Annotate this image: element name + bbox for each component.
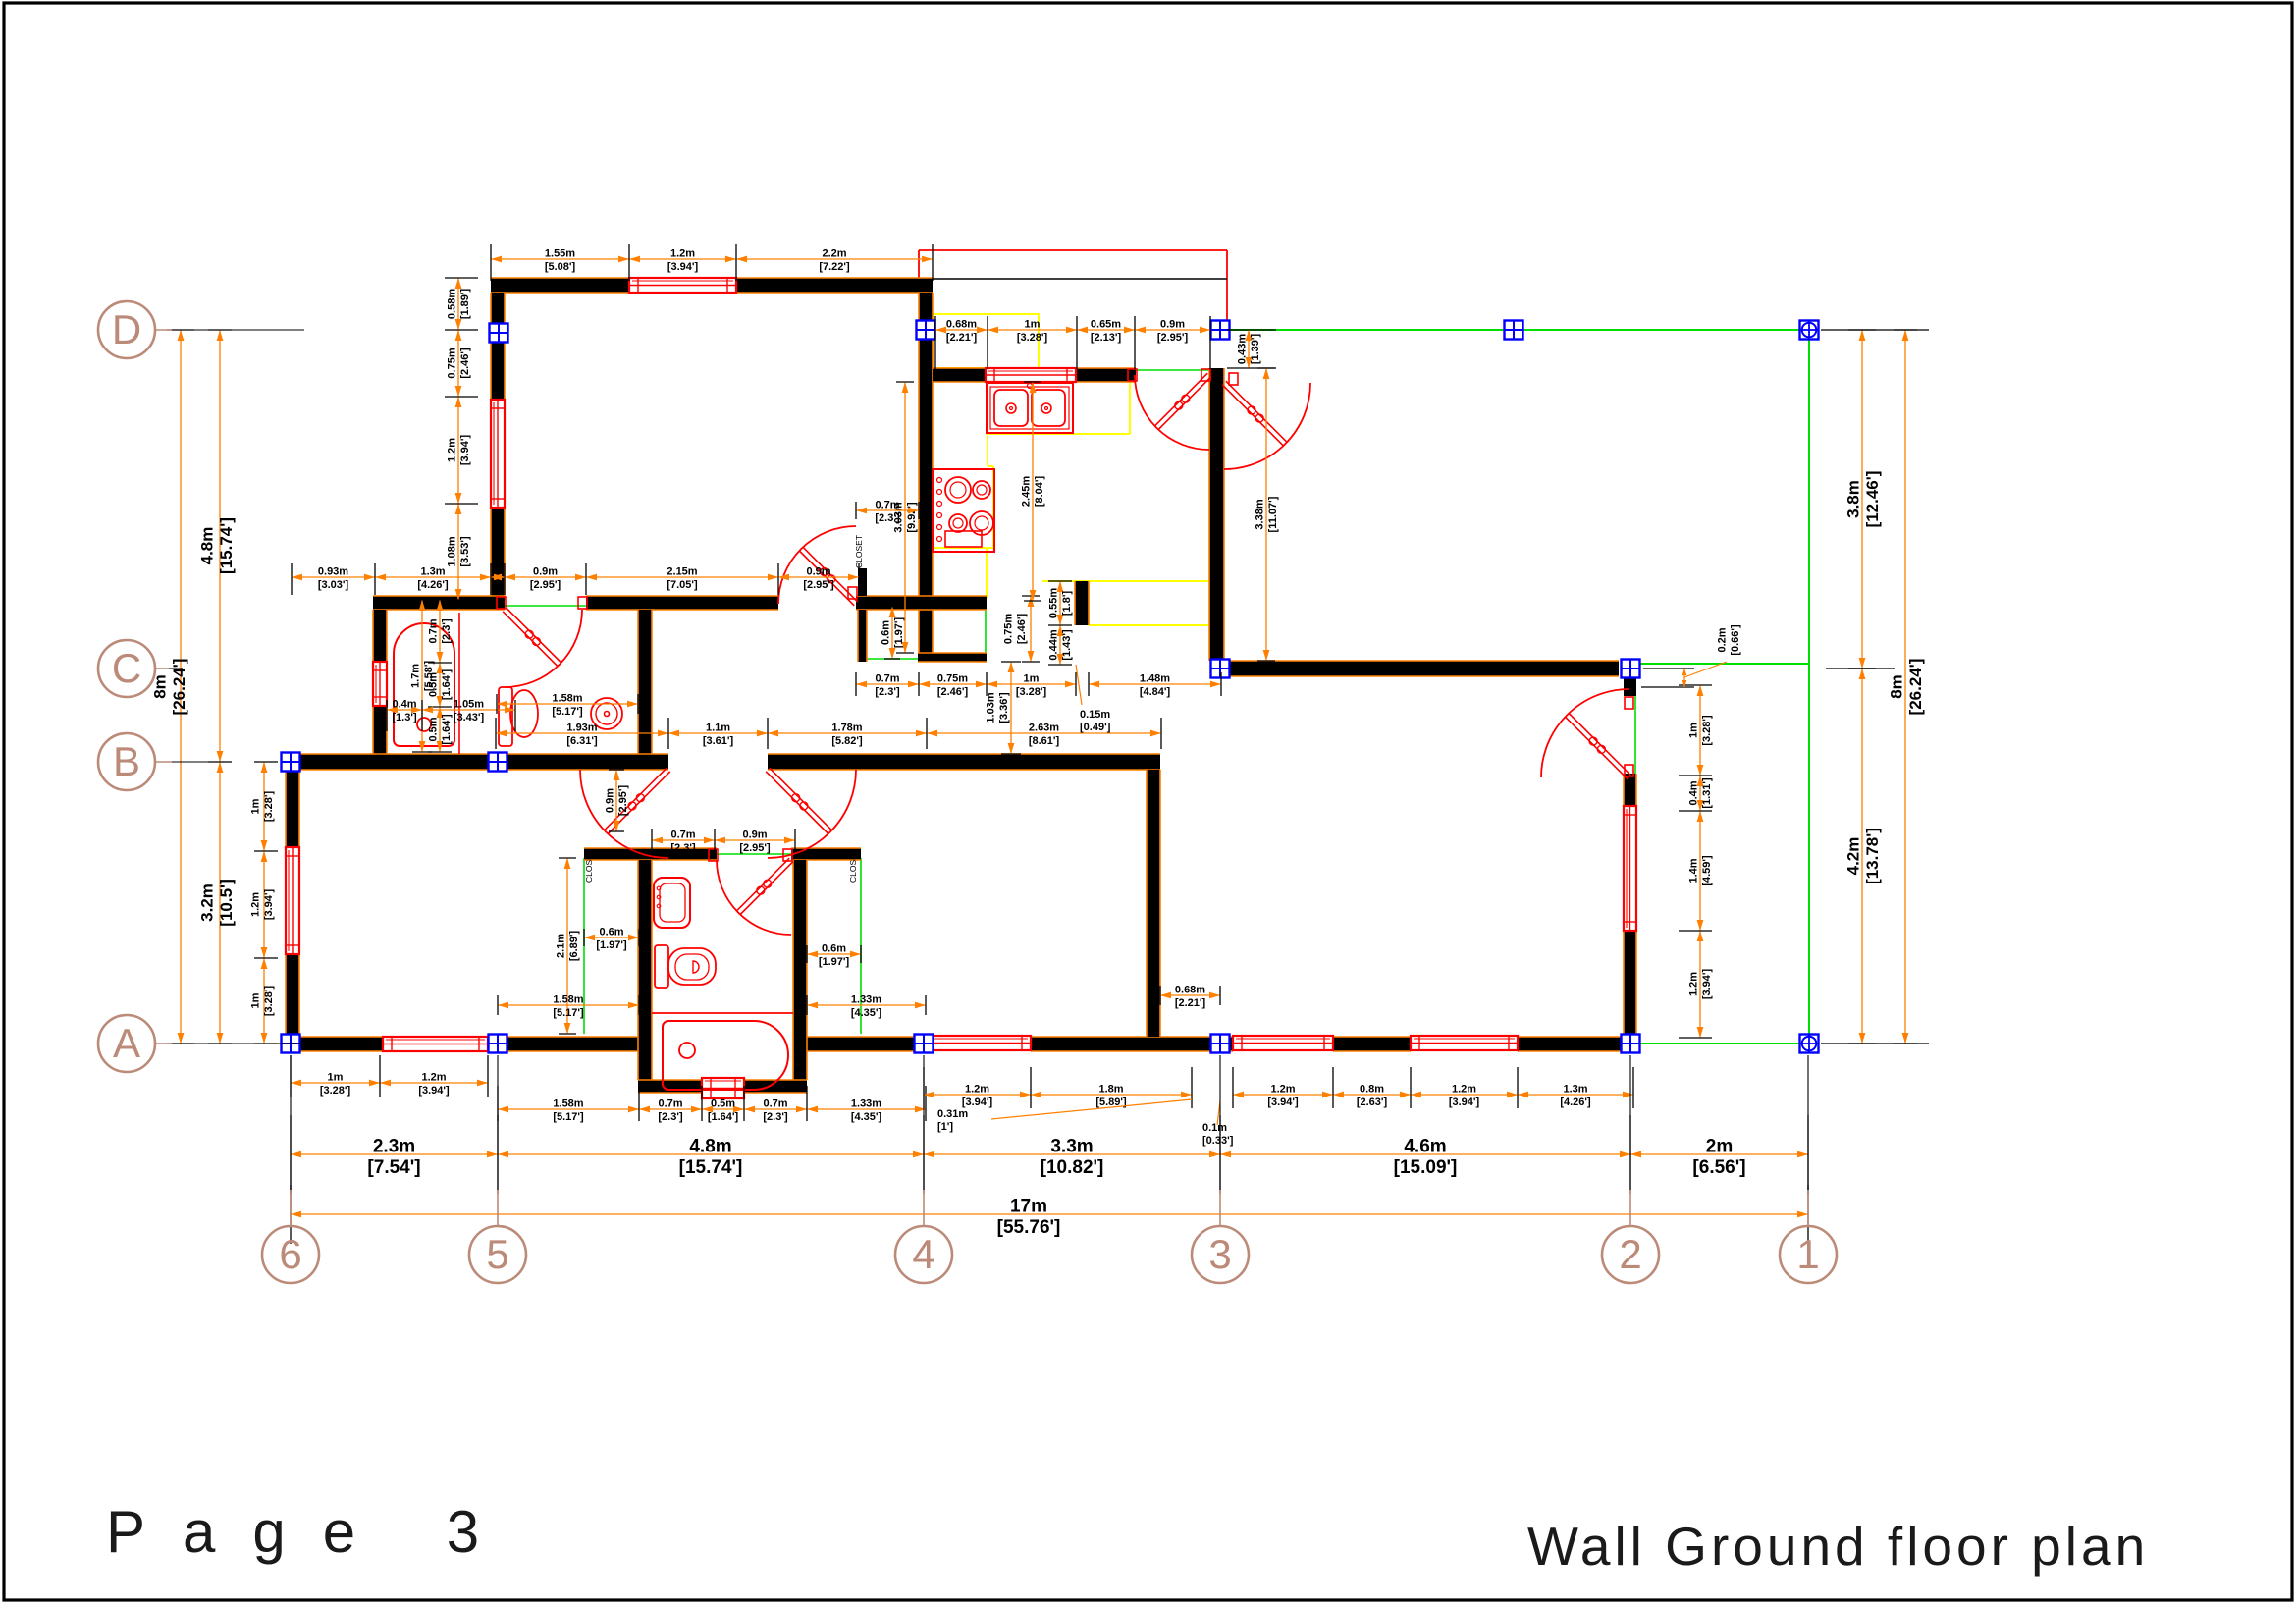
svg-text:[4.26']: [4.26']	[417, 579, 449, 591]
svg-text:[5.17']: [5.17']	[553, 1111, 584, 1123]
svg-text:0.7m: 0.7m	[875, 673, 899, 685]
svg-text:2.45m: 2.45m	[1021, 476, 1033, 507]
svg-text:1.4m: 1.4m	[1688, 858, 1700, 883]
svg-text:2.1m: 2.1m	[556, 934, 567, 958]
svg-text:[2.3']: [2.3']	[441, 618, 453, 644]
svg-text:1.33m: 1.33m	[851, 994, 881, 1006]
svg-text:[2.46']: [2.46']	[937, 686, 969, 698]
svg-text:1.2m: 1.2m	[670, 248, 695, 260]
svg-text:1.58m: 1.58m	[553, 994, 583, 1006]
svg-text:[3.94']: [3.94']	[667, 261, 699, 273]
svg-text:CLOSET: CLOSET	[854, 535, 864, 568]
svg-text:0.93m: 0.93m	[318, 566, 348, 578]
svg-text:0.15m: 0.15m	[1080, 709, 1110, 721]
svg-text:[2.63']: [2.63']	[1357, 1097, 1388, 1108]
svg-text:17m: 17m	[1010, 1197, 1047, 1217]
svg-text:[1.8']: [1.8']	[1061, 591, 1073, 616]
svg-text:[3.94']: [3.94']	[459, 434, 471, 465]
svg-text:[1.97']: [1.97']	[819, 956, 850, 968]
svg-text:[3.94']: [3.94']	[263, 888, 275, 920]
svg-text:[5.58']: [5.58']	[423, 660, 435, 691]
svg-text:0.55m: 0.55m	[1048, 588, 1060, 618]
svg-text:3.8m: 3.8m	[1844, 480, 1863, 518]
svg-text:1.2m: 1.2m	[1688, 972, 1700, 996]
svg-text:[3.53']: [3.53']	[459, 536, 471, 567]
svg-text:[2.95']: [2.95']	[530, 579, 561, 591]
svg-text:0.31m: 0.31m	[937, 1108, 968, 1120]
svg-text:[1.64']: [1.64']	[441, 714, 453, 745]
svg-text:[12.46']: [12.46']	[1863, 471, 1882, 528]
svg-text:[3.36']: [3.36']	[998, 692, 1010, 723]
svg-text:1.8m: 1.8m	[1098, 1084, 1123, 1096]
svg-text:0.1m: 0.1m	[1202, 1122, 1227, 1134]
svg-text:8m: 8m	[1888, 674, 1906, 699]
svg-text:[5.17']: [5.17']	[553, 1007, 584, 1019]
svg-text:0.43m: 0.43m	[1237, 334, 1249, 364]
svg-text:[2.21']: [2.21']	[946, 332, 978, 344]
svg-text:2.15m: 2.15m	[667, 566, 697, 578]
svg-text:[3.94']: [3.94']	[1267, 1097, 1299, 1108]
svg-text:[8.61']: [8.61']	[1029, 735, 1060, 747]
svg-text:[3.94']: [3.94']	[1449, 1097, 1480, 1108]
svg-text:[4.35']: [4.35']	[851, 1111, 882, 1123]
svg-text:0.9m: 0.9m	[1160, 319, 1185, 331]
svg-text:6: 6	[279, 1231, 301, 1277]
svg-text:[3.28']: [3.28']	[320, 1085, 351, 1097]
svg-text:0.75m: 0.75m	[937, 673, 968, 685]
svg-text:[13.78']: [13.78']	[1863, 828, 1882, 884]
svg-text:1.33m: 1.33m	[851, 1098, 881, 1110]
svg-text:[2.3']: [2.3']	[658, 1111, 683, 1123]
svg-text:2: 2	[1619, 1231, 1641, 1277]
svg-text:[4.26']: [4.26']	[1560, 1097, 1591, 1108]
svg-text:[3.28']: [3.28']	[1017, 332, 1048, 344]
svg-text:1: 1	[1796, 1231, 1819, 1277]
svg-text:1.2m: 1.2m	[1452, 1084, 1476, 1096]
svg-text:0.6m: 0.6m	[881, 620, 892, 645]
svg-text:0.75m: 0.75m	[447, 348, 458, 378]
svg-text:[11.07']: [11.07']	[1267, 496, 1279, 532]
svg-text:[1.43']: [1.43']	[1061, 629, 1073, 661]
svg-text:[1.64']: [1.64']	[708, 1111, 739, 1123]
svg-text:[2.13']: [2.13']	[1091, 332, 1122, 344]
svg-text:1m: 1m	[250, 992, 262, 1008]
svg-text:3.3m: 3.3m	[1050, 1137, 1093, 1157]
svg-text:Page 3: Page 3	[106, 1499, 516, 1565]
svg-text:[3.28']: [3.28']	[1016, 686, 1047, 698]
svg-text:1.78m: 1.78m	[831, 723, 862, 734]
svg-text:[5.17']: [5.17']	[552, 706, 583, 718]
svg-text:1.58m: 1.58m	[553, 1098, 583, 1110]
svg-text:1.2m: 1.2m	[965, 1084, 989, 1096]
svg-text:[2.46']: [2.46']	[1016, 613, 1028, 644]
svg-text:[5.82']: [5.82']	[831, 735, 863, 747]
svg-text:0.2m: 0.2m	[1717, 627, 1729, 652]
svg-text:0.44m: 0.44m	[1048, 629, 1060, 660]
svg-text:[1.64']: [1.64']	[441, 669, 453, 700]
svg-text:4.2m: 4.2m	[1844, 837, 1863, 876]
svg-text:[1.97']: [1.97']	[596, 939, 627, 951]
svg-text:[15.09']: [15.09']	[1394, 1157, 1458, 1178]
svg-text:CLOSET: CLOSET	[848, 849, 858, 883]
svg-text:0.75m: 0.75m	[1003, 614, 1015, 644]
svg-text:[3.94']: [3.94']	[962, 1097, 993, 1108]
svg-text:[2.21']: [2.21']	[1175, 997, 1206, 1009]
svg-text:0.7m: 0.7m	[670, 830, 695, 841]
svg-text:[2.95']: [2.95']	[617, 784, 629, 816]
svg-text:[4.59']: [4.59']	[1701, 855, 1713, 886]
svg-text:0.6m: 0.6m	[822, 943, 846, 955]
svg-text:[1.3']: [1.3']	[392, 712, 417, 723]
svg-text:0.9m: 0.9m	[806, 566, 830, 578]
svg-text:1.58m: 1.58m	[552, 693, 582, 705]
svg-text:0.9m: 0.9m	[742, 830, 767, 841]
svg-text:1.93m: 1.93m	[566, 723, 597, 734]
svg-text:1.2m: 1.2m	[1270, 1084, 1295, 1096]
svg-text:0.5m: 0.5m	[711, 1098, 735, 1110]
svg-text:1.05m: 1.05m	[454, 699, 484, 711]
svg-text:2.2m: 2.2m	[822, 248, 846, 260]
svg-text:[3.28']: [3.28']	[263, 790, 275, 822]
svg-text:0.4m: 0.4m	[1688, 780, 1700, 805]
svg-text:[7.05']: [7.05']	[667, 579, 698, 591]
svg-text:[6.56']: [6.56']	[1692, 1157, 1745, 1178]
svg-text:[3.28']: [3.28']	[263, 985, 275, 1016]
svg-text:0.68m: 0.68m	[946, 319, 977, 331]
svg-text:[15.74']: [15.74']	[217, 517, 236, 574]
svg-text:[2.3']: [2.3']	[670, 842, 696, 854]
svg-text:CLOSET: CLOSET	[584, 849, 594, 883]
svg-text:[26.24']: [26.24']	[1906, 659, 1925, 716]
svg-text:[3.94']: [3.94']	[418, 1085, 450, 1097]
svg-text:A: A	[113, 1020, 140, 1066]
svg-text:D: D	[112, 306, 141, 352]
svg-text:4.6m: 4.6m	[1404, 1137, 1446, 1157]
svg-text:1.2m: 1.2m	[421, 1072, 446, 1084]
svg-text:[2.3']: [2.3']	[875, 512, 900, 524]
svg-text:3: 3	[1208, 1231, 1231, 1277]
svg-text:4: 4	[912, 1231, 934, 1277]
svg-text:[2.95']: [2.95']	[739, 842, 771, 854]
svg-text:[5.08']: [5.08']	[545, 261, 576, 273]
svg-text:[3.61']: [3.61']	[703, 735, 734, 747]
svg-text:[3.03']: [3.03']	[318, 579, 349, 591]
svg-text:[0.49']: [0.49']	[1080, 722, 1111, 733]
svg-text:1m: 1m	[1025, 319, 1041, 331]
svg-text:[3.94']: [3.94']	[1701, 968, 1713, 999]
svg-text:0.8m: 0.8m	[1360, 1084, 1384, 1096]
svg-text:[6.89']: [6.89']	[568, 930, 580, 961]
svg-text:0.65m: 0.65m	[1091, 319, 1121, 331]
svg-text:[1.31']: [1.31']	[1701, 777, 1713, 809]
svg-text:[7.22']: [7.22']	[819, 261, 850, 273]
svg-text:0.68m: 0.68m	[1175, 985, 1205, 996]
svg-text:[2.3']: [2.3']	[875, 686, 900, 698]
svg-text:[4.84']: [4.84']	[1140, 686, 1171, 698]
svg-text:[6.31']: [6.31']	[566, 735, 598, 747]
svg-text:[55.76']: [55.76']	[997, 1217, 1061, 1238]
svg-text:0.58m: 0.58m	[447, 289, 458, 319]
svg-text:1.2m: 1.2m	[250, 892, 262, 917]
svg-text:3.2m: 3.2m	[198, 883, 217, 922]
svg-text:0.7m: 0.7m	[658, 1098, 682, 1110]
svg-text:1.03m: 1.03m	[986, 692, 997, 723]
svg-text:[0.33']: [0.33']	[1202, 1135, 1234, 1147]
svg-text:[3.43']: [3.43']	[454, 712, 485, 723]
svg-text:2.3m: 2.3m	[373, 1137, 415, 1157]
svg-text:[2.46']: [2.46']	[459, 348, 471, 379]
svg-text:0.9m: 0.9m	[533, 566, 558, 578]
svg-text:2.63m: 2.63m	[1029, 723, 1059, 734]
svg-text:4.8m: 4.8m	[689, 1137, 731, 1157]
svg-text:[1.89']: [1.89']	[459, 288, 471, 319]
svg-text:1.3m: 1.3m	[1563, 1084, 1587, 1096]
svg-text:[2.95']: [2.95']	[1157, 332, 1189, 344]
svg-text:1.7m: 1.7m	[410, 664, 422, 688]
svg-text:[3.28']: [3.28']	[1701, 715, 1713, 746]
svg-text:1.08m: 1.08m	[447, 536, 458, 566]
svg-text:1.3m: 1.3m	[420, 566, 445, 578]
svg-text:[7.54']: [7.54']	[367, 1157, 420, 1178]
svg-text:1m: 1m	[1024, 673, 1040, 685]
svg-text:[4.35']: [4.35']	[851, 1007, 882, 1019]
svg-text:[9.92']: [9.92']	[906, 502, 918, 533]
svg-text:[1.39']: [1.39']	[1250, 333, 1261, 364]
svg-text:[10.5']: [10.5']	[217, 879, 236, 926]
svg-text:[0.66']: [0.66']	[1730, 624, 1741, 656]
svg-text:[15.74']: [15.74']	[679, 1157, 743, 1178]
svg-text:[1']: [1']	[937, 1121, 953, 1133]
svg-text:0.7m: 0.7m	[875, 500, 899, 511]
svg-text:0.7m: 0.7m	[763, 1098, 787, 1110]
svg-text:1.48m: 1.48m	[1140, 673, 1170, 685]
svg-text:[8.04']: [8.04']	[1034, 475, 1045, 507]
svg-text:3.38m: 3.38m	[1255, 499, 1266, 529]
svg-text:C: C	[112, 645, 141, 691]
svg-text:1m: 1m	[1688, 723, 1700, 738]
svg-text:[10.82']: [10.82']	[1041, 1157, 1104, 1178]
svg-text:0.4m: 0.4m	[392, 699, 416, 711]
svg-text:1m: 1m	[328, 1072, 344, 1084]
svg-text:1.1m: 1.1m	[706, 723, 730, 734]
svg-text:[2.3']: [2.3']	[763, 1111, 788, 1123]
svg-text:1m: 1m	[250, 798, 262, 814]
svg-text:1.2m: 1.2m	[447, 438, 458, 462]
svg-text:0.7m: 0.7m	[428, 618, 440, 643]
svg-text:Wall Ground floor plan: Wall Ground floor plan	[1527, 1516, 2149, 1577]
svg-text:4.8m: 4.8m	[198, 527, 217, 565]
svg-text:[2.95']: [2.95']	[803, 579, 834, 591]
svg-text:B: B	[113, 738, 140, 784]
svg-text:0.6m: 0.6m	[599, 927, 623, 938]
svg-text:0.5m: 0.5m	[428, 717, 440, 741]
svg-text:0.9m: 0.9m	[605, 788, 616, 813]
svg-text:2m: 2m	[1706, 1137, 1733, 1157]
svg-text:[26.24']: [26.24']	[170, 659, 188, 716]
svg-text:1.55m: 1.55m	[545, 248, 575, 260]
svg-text:5: 5	[486, 1231, 508, 1277]
